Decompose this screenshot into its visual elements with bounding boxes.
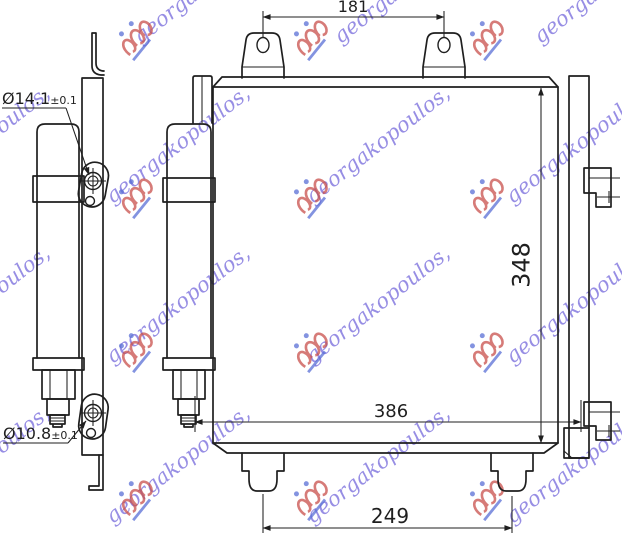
watermark-text: georgakopoulos, — [501, 81, 622, 208]
dim-bottom-tab-spacing: 249 — [371, 504, 409, 528]
watermark-text: georgakopoulos, — [301, 241, 455, 368]
watermark-logo — [464, 13, 511, 60]
drier-fitting1-front — [173, 370, 205, 399]
bottom-mount-tab-right — [491, 453, 533, 491]
clamp-band-lower-side — [33, 358, 84, 370]
top-mount-tab-right — [423, 33, 465, 78]
watermark-text: georgakopoulos, — [529, 0, 622, 48]
clamp-band-upper-side — [33, 176, 84, 202]
watermark-text: georgakopoulos, — [501, 401, 622, 528]
top-mount-tab-left — [242, 33, 284, 78]
clamp-band-lower-front — [163, 358, 215, 370]
drier-fitting2-front — [178, 399, 199, 415]
drier-fitting2-side — [47, 399, 69, 415]
mounting-hole-bottom-crosshair — [80, 400, 106, 438]
bottom-mount-tab-left — [242, 453, 284, 491]
drawing-page: georgakopoulos,georgakopoulos,georgakopo… — [0, 0, 622, 535]
watermark-text: georgakopoulos, — [301, 81, 455, 208]
watermark-text: georgakopoulos, — [101, 241, 255, 368]
drier-bottle-side — [37, 124, 79, 358]
header-plate — [213, 77, 558, 87]
watermark-text: georgakopoulos, — [129, 0, 283, 48]
watermark-text: georgakopoulos, — [0, 401, 55, 528]
condenser-technical-drawing: georgakopoulos,georgakopoulos,georgakopo… — [0, 0, 622, 535]
dim-core-height: 348 — [507, 242, 535, 288]
watermark-text: georgakopoulos, — [0, 241, 55, 368]
watermark-text: georgakopoulos, — [0, 0, 83, 48]
label-top-hole-diameter: Ø14.1±0.1 — [2, 89, 77, 108]
bottom-bracket-tail — [89, 455, 103, 490]
watermark-text: georgakopoulos, — [101, 81, 255, 208]
top-bracket-tail — [92, 33, 104, 75]
watermark-logo — [288, 13, 335, 60]
dim-overall-width: 386 — [374, 401, 408, 422]
clamp-band-upper-front — [163, 178, 215, 202]
drier-fitting1-side — [42, 370, 75, 399]
label-bottom-hole-diameter: Ø10.8±0.1 — [3, 424, 78, 443]
dim-top-tab-spacing: 181 — [338, 0, 369, 16]
